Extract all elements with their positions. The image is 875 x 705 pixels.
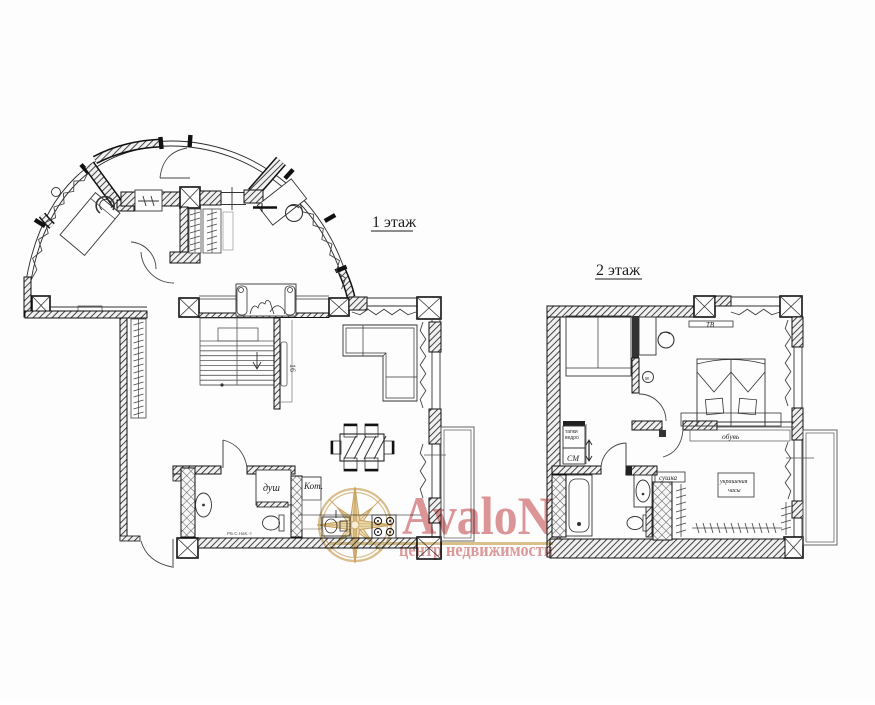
- svg-text:2 этаж: 2 этаж: [596, 262, 641, 279]
- svg-text:СМ: СМ: [567, 454, 580, 463]
- svg-text:сушка: сушка: [659, 474, 678, 482]
- svg-text:часы: часы: [728, 488, 741, 494]
- svg-text:1 этаж: 1 этаж: [372, 214, 417, 231]
- svg-text:ведро: ведро: [565, 435, 579, 441]
- svg-text:украшения: украшения: [719, 479, 748, 485]
- svg-text:центр недвижимости: центр недвижимости: [399, 541, 553, 561]
- svg-text:16: 16: [288, 364, 297, 372]
- svg-text:РБ.С.НаК.-т: РБ.С.НаК.-т: [227, 531, 252, 536]
- svg-text:обувь: обувь: [722, 432, 740, 441]
- svg-text:м: м: [645, 376, 649, 382]
- svg-text:Кот.: Кот.: [303, 481, 323, 491]
- svg-text:ТВ: ТВ: [706, 321, 715, 329]
- svg-text:душ: душ: [263, 483, 280, 494]
- svg-text:AvaloN: AvaloN: [402, 486, 552, 546]
